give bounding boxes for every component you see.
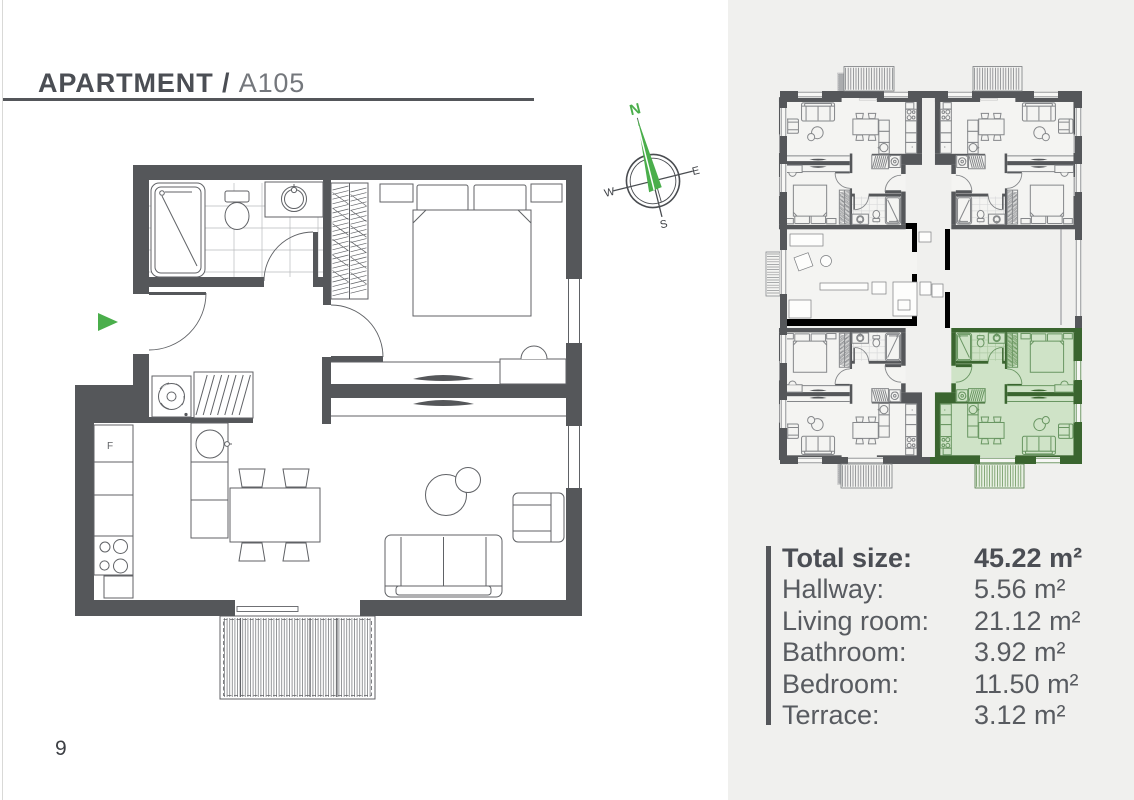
svg-text:S: S <box>659 218 669 231</box>
svg-text:E: E <box>691 165 701 178</box>
svg-text:W: W <box>603 186 617 200</box>
svg-text:N: N <box>628 100 643 119</box>
